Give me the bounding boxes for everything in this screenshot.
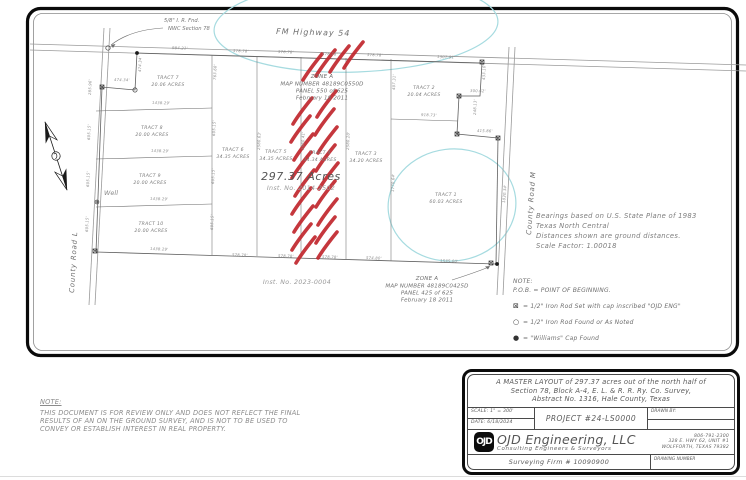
dimension-label: 578.78' — [278, 49, 294, 55]
dimension-label: 578.78' — [322, 254, 338, 260]
dimension-label: 474.34' — [137, 56, 143, 72]
bearings-line: Texas North Central — [536, 221, 697, 231]
dimension-label: 1535.00' — [440, 258, 459, 264]
leader-lines — [111, 28, 490, 280]
zone-a-south-leader — [452, 267, 489, 280]
flood-hatch-stroke — [318, 199, 337, 225]
highway-label: FM Highway 54 — [276, 27, 351, 38]
iron-rod-set-icon: ⊠ — [513, 302, 523, 310]
tract-7-name: TRACT 7 — [157, 75, 179, 81]
flood-hatch-stroke — [318, 127, 337, 153]
dimension-label: 918.73' — [421, 112, 437, 118]
tract-10-name: TRACT 10 — [139, 221, 164, 227]
tract-2-name: TRACT 2 — [413, 85, 435, 91]
tract-1-name: TRACT 1 — [435, 192, 457, 198]
legend-item-text: = 1/2" Iron Rod Found or As Noted — [523, 319, 634, 326]
dimension-label: 605.15' — [84, 216, 90, 232]
nwc-note-line2: NWC Section 78 — [168, 26, 211, 32]
dimension-label: 605.15' — [211, 120, 217, 136]
tract-8-acres: 20.00 ACRES — [135, 132, 168, 138]
pob-definition: P.O.B. = POINT OF BEGINNING. — [513, 287, 681, 294]
dimension-label: 578.78' — [367, 52, 383, 58]
dimension-label: 1438.29' — [150, 246, 169, 252]
title-block-row4: Surveying Firm # 10090900 DRAWING NUMBER — [468, 454, 734, 469]
review-note-line: RESULTS OF AN ON THE GROUND SURVEY, AND … — [40, 417, 340, 425]
dimension-label: 474.34' — [114, 77, 130, 82]
flood-hatch-stroke — [293, 98, 312, 124]
tract-5-acres: 34.35 ACRES — [259, 156, 292, 162]
title-block: A MASTER LAYOUT of 297.37 acres out of t… — [462, 369, 740, 475]
tract-3-name: TRACT 3 — [355, 151, 377, 157]
nwc-note-line1: 5/8" I. R. Fnd. — [164, 18, 199, 24]
drawn-by-label: DRAWN BY: — [648, 408, 734, 420]
tract-6-acres: 34.35 ACRES — [216, 154, 249, 160]
dimension-label: 578.78' — [232, 252, 248, 258]
williams-cap-icon — [135, 51, 139, 55]
dimension-label: 248.13' — [472, 99, 478, 115]
dimension-label: 1770.64' — [390, 174, 396, 193]
dimension-label: 605.15' — [209, 214, 215, 230]
instrument-number-sw-label: Inst. No. 2023-0004 — [263, 278, 331, 286]
north-arrow-icon — [39, 120, 73, 192]
bearings-line: Scale Factor: 1.00018 — [536, 241, 697, 251]
dimension-label: 285.96' — [87, 79, 93, 95]
dimension-label: 1438.29' — [152, 100, 170, 105]
zone-leader-arrowhead-icon — [485, 266, 490, 270]
title-block-row2: SCALE: 1" = 300' DATE: 6/18/2024 PROJECT… — [468, 407, 734, 429]
iron-rod-found-icon: ○ — [513, 318, 523, 326]
drawing-number-cell: DRAWING NUMBER — [650, 455, 734, 469]
zone-a-south-line4: February 18 2011 — [401, 298, 453, 304]
legend-note-label: NOTE: — [513, 278, 681, 285]
bearings-line: Distances shown are ground distances. — [536, 231, 697, 241]
road-left-label: County Road L — [68, 231, 79, 293]
north-boundary — [137, 53, 482, 63]
zone-a-north-line3: PANEL 550 of 625 — [296, 89, 349, 95]
dimension-label: 578.78' — [233, 48, 249, 54]
title-line: Section 78, Block A-4, E. L. & R. R. Ry.… — [511, 387, 691, 396]
legend-block: NOTE: P.O.B. = POINT OF BEGINNING. ⊠ = 1… — [513, 278, 681, 342]
project-number: PROJECT #24-LS0000 — [535, 408, 647, 429]
tract-9-name: TRACT 9 — [139, 173, 161, 179]
dimension-label: 407.31' — [391, 74, 397, 90]
company-contact: 806-791-2300 328 E. HWY 62, UNIT #1 WOLF… — [662, 434, 734, 451]
dimension-label: 1830.34' — [501, 184, 508, 203]
legend-item: ● = "Williams" Cap Found — [513, 334, 681, 342]
tract-5-name: TRACT 5 — [265, 149, 287, 155]
company-name: OJD Engineering, LLC — [497, 433, 636, 446]
dimension-label: 574.80' — [366, 255, 382, 261]
dimension-label: 605.15' — [86, 124, 92, 140]
ojd-logo-icon: OJD — [474, 432, 494, 452]
company-address1: 328 E. HWY 62, UNIT #1 — [662, 439, 729, 445]
zone-a-north-note: ZONE A MAP NUMBER 48189C0550D PANEL 550 … — [280, 74, 363, 102]
dimension-label: 578.78' — [278, 253, 294, 259]
review-note-label: NOTE: — [40, 398, 340, 406]
dimension-label: 2580.41' — [300, 132, 306, 151]
tract-4-name: TRACT 4 — [309, 150, 331, 156]
williams-cap-pob-icon — [495, 262, 499, 266]
williams-cap-found-icon: ● — [513, 334, 523, 342]
dimension-label: 605.15' — [85, 171, 91, 187]
well-label: Well — [104, 189, 118, 197]
east-boundary — [496, 138, 498, 264]
dimension-label: 1307.91' — [437, 54, 456, 60]
well-symbol-dot — [97, 202, 98, 203]
crl-west-edge — [89, 28, 104, 305]
tract-10-acres: 20.00 ACRES — [134, 228, 167, 234]
crm-west-edge — [497, 47, 509, 295]
dimension-label: 578.78' — [322, 51, 338, 57]
title-block-inner: A MASTER LAYOUT of 297.37 acres out of t… — [467, 374, 735, 470]
company-row: OJD OJD Engineering, LLC Consulting Engi… — [468, 429, 734, 454]
legend-item: ⊠ = 1/2" Iron Rod Set with cap inscribed… — [513, 302, 681, 310]
review-note-line: THIS DOCUMENT IS FOR REVIEW ONLY AND DOE… — [40, 409, 340, 417]
nwc-leader — [111, 28, 163, 45]
page-edge-line — [0, 476, 746, 477]
legend-item-text: = "Williams" Cap Found — [523, 335, 599, 342]
scale-date-cell: SCALE: 1" = 300' DATE: 6/18/2024 — [468, 408, 535, 429]
tract-8-name: TRACT 8 — [141, 125, 163, 131]
surveying-firm-number: Surveying Firm # 10090900 — [468, 455, 650, 469]
company-subtitle: Consulting Engineers & Surveyors — [497, 446, 636, 452]
tract-1-acres: 60.03 ACRES — [429, 199, 462, 205]
tract-4-acres: 34.34 ACRES — [303, 157, 336, 163]
zone-a-north-line4: February 18 2011 — [296, 96, 348, 102]
tract-2-acres: 20.04 ACRES — [407, 92, 440, 98]
tract-9-acres: 20.00 ACRES — [133, 180, 166, 186]
dimension-label: 415.86' — [477, 128, 493, 133]
total-acreage-label: 297.37 Acres — [261, 170, 341, 183]
flood-hatch-stroke — [294, 206, 313, 232]
dimension-label: 763.68' — [212, 64, 218, 80]
survey-plat-sheet: FM Highway 54 County Road L County Road … — [0, 0, 746, 480]
instrument-number-label: Inst. No. 2014-2502 — [267, 184, 335, 192]
west-boundary — [96, 53, 137, 252]
dimension-label: 984.21' — [172, 45, 188, 51]
tract-3-acres: 34.20 ACRES — [349, 158, 382, 164]
dimension-label: 1438.29' — [150, 196, 168, 201]
dimension-label: 605.15' — [210, 168, 216, 184]
drawing-title: A MASTER LAYOUT of 297.37 acres out of t… — [468, 375, 734, 407]
title-line: Abstract No. 1316, Hale County, Texas — [532, 395, 670, 404]
dimension-label: 300.62' — [470, 88, 486, 93]
legend-item: ○ = 1/2" Iron Rod Found or As Noted — [513, 318, 681, 326]
dimension-label: 2580.20' — [345, 132, 351, 151]
title-line: A MASTER LAYOUT of 297.37 acres out of t… — [496, 378, 706, 387]
tract-6-name: TRACT 6 — [222, 147, 244, 153]
bearings-note: Bearings based on U.S. State Plane of 19… — [536, 211, 697, 251]
drawn-by-cell: DRAWN BY: — [647, 408, 734, 429]
legend-item-text: = 1/2" Iron Rod Set with cap inscribed "… — [523, 303, 681, 310]
company-address2: WOLFFORTH, TEXAS 79382 — [662, 445, 729, 451]
zone-a-south-line1: ZONE A — [415, 276, 438, 282]
bearings-line: Bearings based on U.S. State Plane of 19… — [536, 211, 697, 221]
tract-7-acres: 20.06 ACRES — [151, 82, 184, 88]
zone-a-south-line2: MAP NUMBER 48189C0425D — [385, 284, 468, 290]
scale-value: SCALE: 1" = 300' — [468, 408, 534, 419]
company-name-block: OJD Engineering, LLC Consulting Engineer… — [497, 433, 636, 452]
zone-a-north-line2: MAP NUMBER 48189C0550D — [280, 82, 363, 88]
dimension-label: 1438.29' — [151, 148, 169, 153]
zone-a-south-note: ZONE A MAP NUMBER 48189C0425D PANEL 425 … — [385, 276, 468, 304]
review-note-line: CONVEY OR ESTABLISH INTEREST IN REAL PRO… — [40, 425, 340, 433]
zone-a-south-line3: PANEL 425 of 625 — [401, 291, 454, 297]
crl-east-edge — [95, 28, 110, 305]
dimension-label: 2580.63' — [256, 132, 262, 151]
dimension-label: 433.10' — [481, 64, 487, 80]
flood-outline-north — [212, 0, 499, 77]
review-disclaimer: NOTE: THIS DOCUMENT IS FOR REVIEW ONLY A… — [40, 398, 340, 433]
zone-a-north-line1: ZONE A — [310, 74, 333, 80]
date-value: DATE: 6/18/2024 — [468, 419, 534, 429]
